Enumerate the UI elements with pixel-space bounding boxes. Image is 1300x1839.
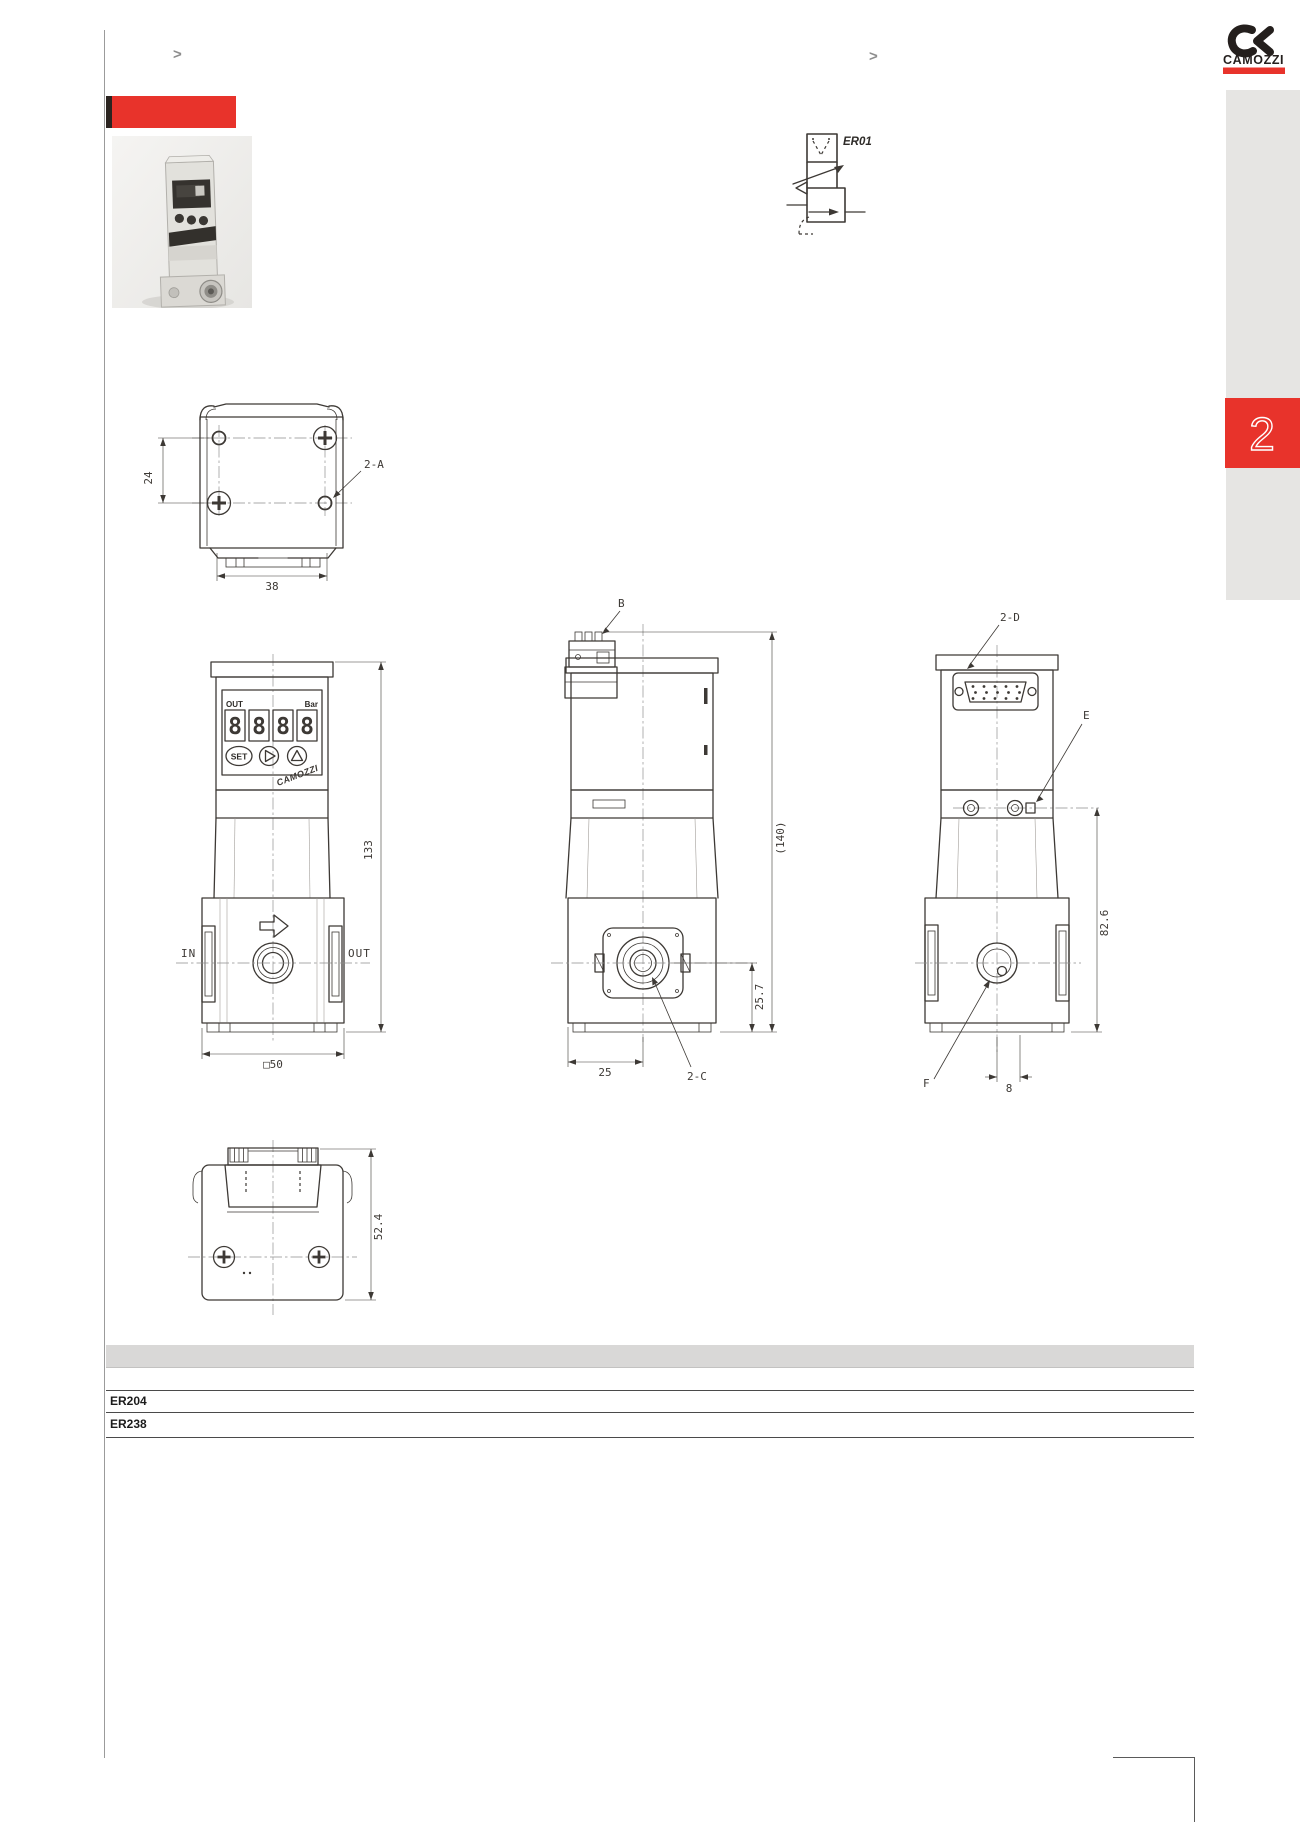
- callout-f-label: F: [923, 1077, 930, 1090]
- top-view-drawing: 24 38 2-A: [130, 395, 400, 600]
- triangle-up-icon: [292, 751, 303, 761]
- footer-rule-vertical: [1194, 1757, 1195, 1822]
- dsub-connector: [953, 673, 1038, 710]
- left-margin-rule: [104, 30, 105, 1758]
- camozzi-logo-underline: [1223, 68, 1285, 75]
- callout-2c-label: 2-C: [687, 1070, 707, 1083]
- dim-140-label: (140): [774, 821, 787, 854]
- front-view-drawing: OUT Bar 8 8 8 8 SET: [160, 650, 400, 1080]
- callout-e-label: E: [1083, 709, 1090, 722]
- dim-82-6-label: 82.6: [1098, 910, 1111, 937]
- callout-b-label: B: [618, 597, 625, 610]
- display-digit: 8: [300, 714, 314, 740]
- dim-8-label: 8: [1006, 1082, 1013, 1095]
- section-tab[interactable]: 2: [1225, 398, 1300, 468]
- dim-25-label: 25: [598, 1066, 611, 1079]
- display-digit: 8: [276, 714, 290, 740]
- footer-rule-horizontal: [1113, 1757, 1194, 1758]
- bottom-view-drawing: 52.4: [180, 1135, 410, 1320]
- right-arrow-button[interactable]: [260, 747, 279, 766]
- triangle-right-icon: [266, 751, 276, 762]
- display-out-label: OUT: [226, 700, 243, 709]
- rear-view-drawing: 2-D E 82.6 F 8: [905, 605, 1135, 1105]
- table-rule: [106, 1437, 1194, 1438]
- display-unit-label: Bar: [305, 700, 318, 709]
- product-photo: [112, 136, 252, 308]
- port-in-label: IN: [181, 947, 196, 960]
- breadcrumb-chevron-right: >: [869, 48, 878, 65]
- cable-connector: [565, 632, 617, 698]
- table-row-model[interactable]: ER204: [110, 1394, 147, 1408]
- set-button-label: SET: [231, 752, 248, 762]
- camozzi-logo: CAMOZZI: [1222, 22, 1292, 76]
- dim-133-label: 133: [362, 840, 375, 860]
- section-tab-number: 2: [1249, 408, 1275, 460]
- camozzi-logo-text: CAMOZZI: [1223, 53, 1284, 67]
- table-row-model[interactable]: ER238: [110, 1417, 147, 1431]
- dim-25-7-label: 25.7: [753, 984, 766, 1011]
- breadcrumb-chevron-left: >: [173, 46, 182, 63]
- display-digit: 8: [252, 714, 266, 740]
- pneumatic-symbol: ER01: [785, 122, 905, 240]
- set-button[interactable]: SET: [226, 747, 252, 766]
- proportional-regulator-symbol-icon: [787, 134, 865, 234]
- catalog-page: > > CAMOZZI 2: [0, 0, 1300, 1839]
- regulator-display-panel: OUT Bar 8 8 8 8 SET: [222, 690, 322, 788]
- table-rule: [106, 1390, 1194, 1391]
- sidebar-section-strip: [1226, 90, 1300, 600]
- series-header-bar: [106, 96, 236, 128]
- schematic-model-label: ER01: [843, 136, 872, 148]
- dim-38-label: 38: [265, 580, 278, 593]
- dim-24-label: 24: [142, 471, 155, 485]
- flow-direction-arrow-icon: [260, 915, 288, 937]
- up-arrow-button[interactable]: [288, 747, 307, 766]
- callout-2a-label: 2-A: [364, 458, 384, 471]
- callout-2d-label: 2-D: [1000, 611, 1020, 624]
- table-header-band: [106, 1345, 1194, 1368]
- display-digit: 8: [228, 714, 242, 740]
- side-view-drawing: B (140) 25.7 25 2-C: [545, 590, 805, 1090]
- dim-52-4-label: 52.4: [372, 1213, 385, 1240]
- camozzi-logo-mark: [1232, 28, 1270, 53]
- dim-50-label: □50: [263, 1058, 283, 1071]
- table-rule: [106, 1412, 1194, 1413]
- port-out-label: OUT: [348, 947, 371, 960]
